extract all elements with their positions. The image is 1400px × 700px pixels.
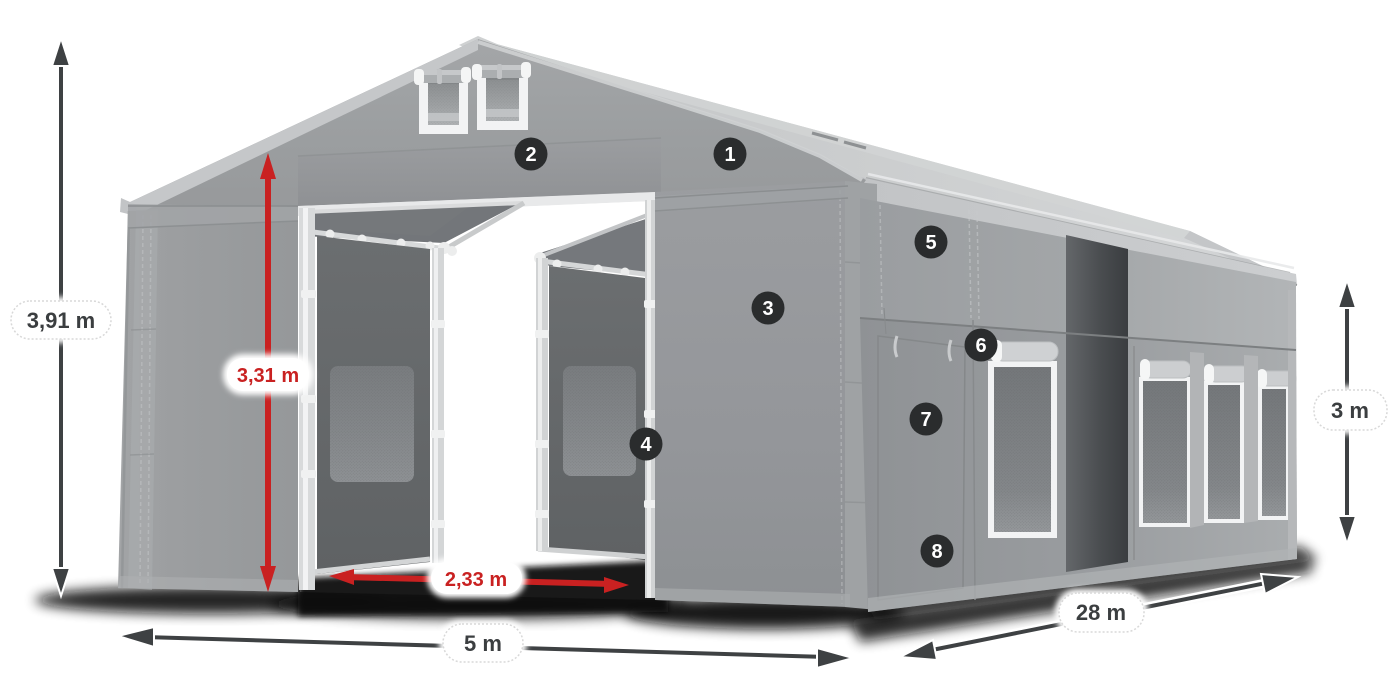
svg-text:3,31 m: 3,31 m <box>237 365 299 387</box>
svg-text:2: 2 <box>525 144 536 166</box>
svg-text:1: 1 <box>724 144 735 166</box>
svg-text:3: 3 <box>762 298 773 320</box>
svg-text:4: 4 <box>640 434 652 456</box>
svg-text:2,33 m: 2,33 m <box>445 569 507 591</box>
svg-text:5: 5 <box>925 232 936 254</box>
svg-text:8: 8 <box>931 541 942 563</box>
svg-text:5 m: 5 m <box>464 631 502 656</box>
svg-text:3,91 m: 3,91 m <box>27 308 96 333</box>
svg-text:28 m: 28 m <box>1076 600 1126 625</box>
svg-text:7: 7 <box>920 409 931 431</box>
svg-text:3 m: 3 m <box>1331 398 1369 423</box>
svg-text:6: 6 <box>975 335 986 357</box>
